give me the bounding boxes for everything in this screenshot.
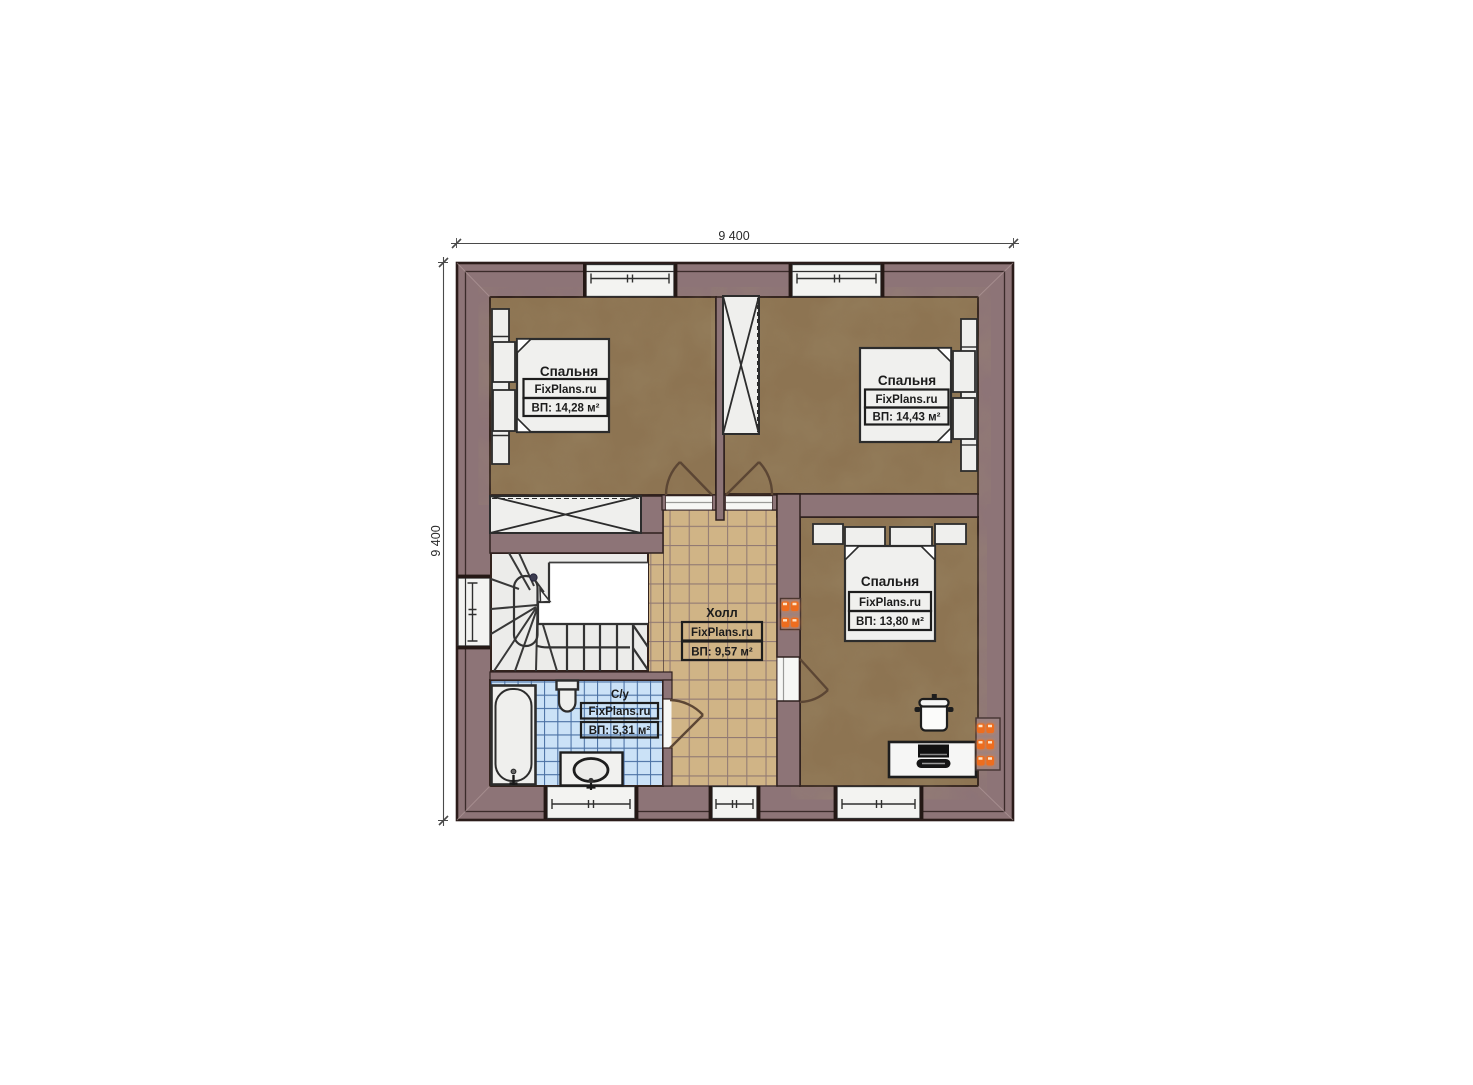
svg-text:С/у: С/у [611, 689, 630, 701]
svg-text:Спальня: Спальня [861, 574, 919, 589]
svg-text:FixPlans.ru: FixPlans.ru [535, 384, 597, 396]
svg-text:FixPlans.ru: FixPlans.ru [859, 597, 921, 609]
svg-text:ВП: 5,31 м²: ВП: 5,31 м² [589, 725, 651, 737]
svg-text:ВП: 14,43 м²: ВП: 14,43 м² [873, 412, 941, 424]
svg-text:9 400: 9 400 [718, 229, 749, 243]
svg-text:ВП: 9,57 м²: ВП: 9,57 м² [691, 647, 753, 659]
svg-text:Холл: Холл [706, 606, 737, 620]
svg-text:Спальня: Спальня [540, 364, 598, 379]
svg-text:9 400: 9 400 [429, 525, 443, 556]
svg-text:FixPlans.ru: FixPlans.ru [691, 627, 753, 639]
svg-text:ВП: 14,28 м²: ВП: 14,28 м² [532, 403, 600, 415]
svg-text:ВП: 13,80 м²: ВП: 13,80 м² [856, 616, 924, 628]
svg-text:FixPlans.ru: FixPlans.ru [876, 394, 938, 406]
svg-text:FixPlans.ru: FixPlans.ru [589, 706, 651, 718]
svg-text:Спальня: Спальня [878, 373, 936, 388]
